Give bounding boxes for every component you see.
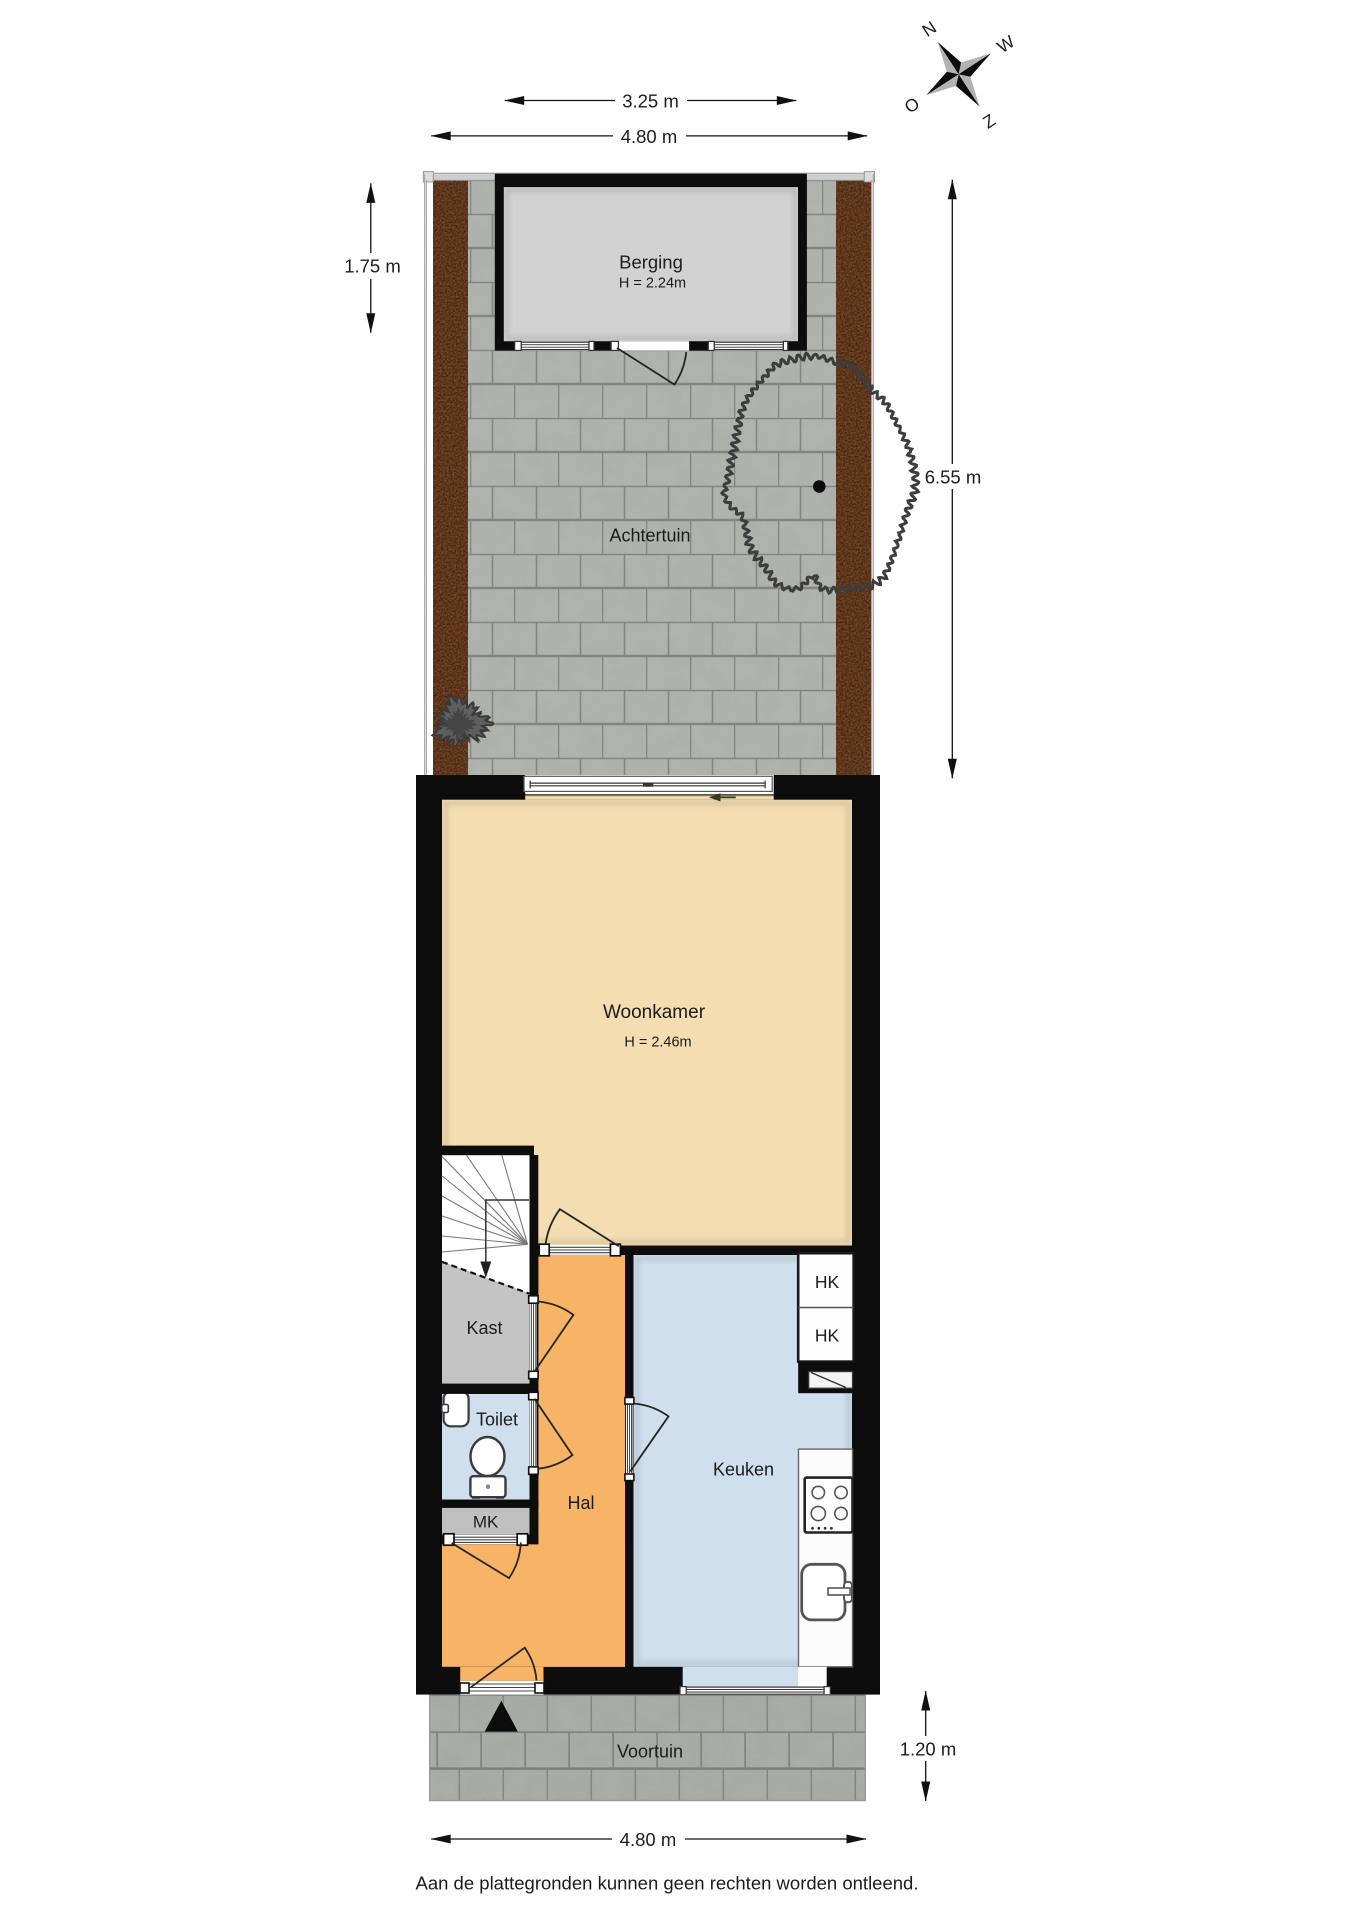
svg-text:HK: HK [815, 1326, 840, 1346]
svg-text:Z: Z [979, 110, 999, 133]
svg-text:Voortuin: Voortuin [617, 1742, 683, 1762]
svg-text:Aan de plattegronden kunnen ge: Aan de plattegronden kunnen geen rechten… [416, 1873, 919, 1894]
svg-text:H = 2.24m: H = 2.24m [619, 276, 686, 292]
svg-text:Berging: Berging [619, 252, 683, 273]
svg-text:Achtertuin: Achtertuin [609, 526, 690, 546]
svg-text:4.80 m: 4.80 m [620, 1829, 677, 1850]
svg-text:1.75 m: 1.75 m [344, 256, 401, 277]
svg-text:6.55 m: 6.55 m [925, 467, 982, 488]
svg-text:4.80 m: 4.80 m [621, 126, 678, 147]
svg-text:MK: MK [473, 1513, 499, 1532]
svg-text:HK: HK [815, 1272, 840, 1292]
svg-text:W: W [993, 31, 1018, 57]
svg-text:Woonkamer: Woonkamer [603, 1002, 706, 1023]
svg-text:3.25 m: 3.25 m [622, 91, 679, 112]
svg-text:Toilet: Toilet [476, 1410, 518, 1430]
svg-text:H = 2.46m: H = 2.46m [624, 1035, 691, 1051]
svg-text:1.20 m: 1.20 m [900, 1739, 957, 1760]
svg-text:Hal: Hal [567, 1493, 594, 1513]
svg-text:Keuken: Keuken [713, 1460, 774, 1480]
svg-text:O: O [901, 93, 923, 117]
svg-text:N: N [918, 17, 939, 41]
svg-text:Kast: Kast [466, 1318, 502, 1338]
